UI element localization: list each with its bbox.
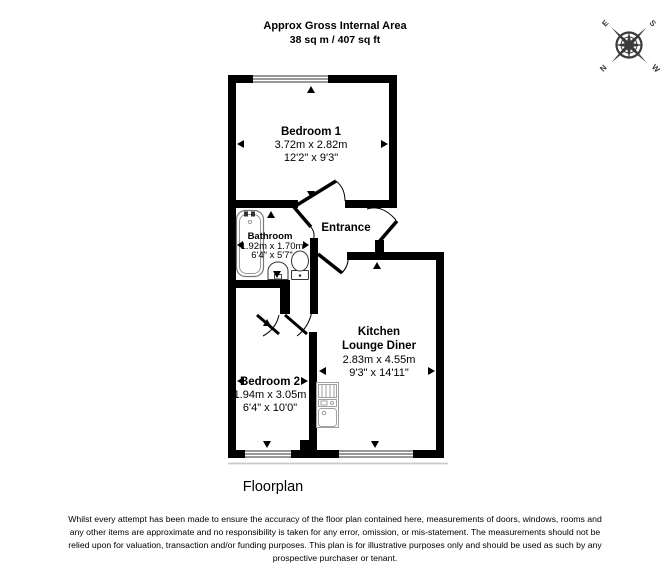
kitchen-metric: 2.83m x 4.55m [343, 354, 416, 366]
toilet [292, 251, 309, 280]
label-entrance: Entrance [321, 222, 370, 234]
arrow-bathroom-up [267, 211, 275, 218]
bedroom1-metric: 3.72m x 2.82m [275, 139, 348, 151]
entrance-name: Entrance [321, 222, 370, 234]
disclaimer: Whilst every attempt has been made to en… [35, 513, 635, 565]
label-kitchen-lounge: Kitchen Lounge Diner 2.83m x 4.55m 9'3" … [342, 326, 417, 379]
disclaimer-line: any other items are approximate and no r… [35, 526, 635, 539]
label-bedroom2: Bedroom 2 1.94m x 3.05m 6'4" x 10'0" [234, 376, 307, 414]
wall-bathroom-right [310, 238, 318, 314]
bathtub-tap [251, 212, 255, 217]
toilet-button [299, 274, 302, 277]
kitchen-imperial: 9'3" x 14'11" [349, 367, 409, 379]
door-kitchen [318, 254, 348, 273]
arrow-kitchen-right [428, 367, 435, 375]
arrow-kitchen-up [373, 262, 381, 269]
arrow-kitchen-down [371, 441, 379, 448]
bedroom1-name: Bedroom 1 [281, 126, 342, 138]
window-bedroom2 [245, 450, 291, 458]
wall-bedroom1-right [389, 75, 397, 208]
bathroom-imperial: 6'4" x 5'7" [251, 250, 293, 261]
bedroom2-imperial: 6'4" x 10'0" [243, 402, 297, 414]
wall-bathroom-bottom [228, 280, 282, 288]
door-cupboard [285, 311, 312, 336]
bathtub-tap [244, 212, 248, 217]
arrow-bedroom2-down [263, 441, 271, 448]
window-kitchen [339, 450, 413, 458]
wall-divider-foot [300, 440, 317, 450]
arrow-bedroom2-right [301, 377, 308, 385]
bedroom1-imperial: 12'2" x 9'3" [284, 152, 338, 164]
arrow-bedroom1-up [307, 86, 315, 93]
wall-bedroom1-bottom-left [228, 200, 298, 208]
arrow-bedroom1-right [381, 140, 388, 148]
basin [268, 262, 288, 280]
bedroom2-metric: 1.94m x 3.05m [234, 389, 307, 401]
bedroom2-name: Bedroom 2 [240, 376, 300, 388]
door-front-entrance [367, 208, 397, 243]
plan-caption: Floorplan [203, 479, 343, 495]
door-bathroom [293, 206, 314, 239]
wall-bedroom2-kitchen-divider [309, 332, 317, 450]
label-bedroom1: Bedroom 1 3.72m x 2.82m 12'2" x 9'3" [275, 126, 348, 164]
floorplan-page: Approx Gross Internal Area 38 sq m / 407… [0, 0, 670, 565]
wall-bedroom1-bottom-right [345, 200, 397, 208]
wall-kitchen-top [347, 252, 444, 260]
disclaimer-line: relied upon for valuation, transaction a… [35, 539, 635, 552]
kitchen-sink-unit [317, 383, 339, 428]
disclaimer-line: prospective purchaser or tenant. [35, 552, 635, 565]
arrow-bedroom1-left [237, 140, 244, 148]
arrow-bathroom-right [303, 241, 309, 249]
disclaimer-line: Whilst every attempt has been made to en… [35, 513, 635, 526]
kitchen-name-line2: Lounge Diner [342, 340, 417, 352]
kitchen-name-line1: Kitchen [358, 326, 400, 338]
wall-kitchen-right [436, 252, 444, 458]
window-bedroom1 [253, 75, 328, 83]
arrow-kitchen-left [319, 367, 326, 375]
door-bedroom1 [297, 181, 345, 205]
